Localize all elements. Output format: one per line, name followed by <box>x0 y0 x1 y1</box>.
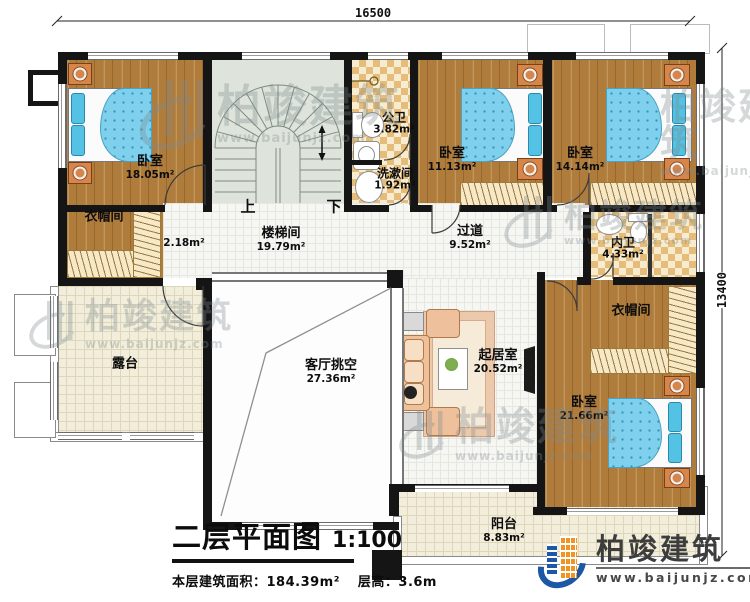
dimension-right: 13400 <box>712 272 732 308</box>
stair-arrow-icon <box>319 125 326 161</box>
dimension-top: 16500 <box>352 6 394 20</box>
room-label-terrace: 露台 <box>112 358 138 373</box>
room-label-stairwell: 楼梯间 19.79m² <box>257 227 306 253</box>
plan-title: 二层平面图 <box>172 514 322 556</box>
title-block: 二层平面图 1:100 本层建筑面积：184.39m² 层高：3.6m <box>172 514 437 590</box>
title-underline <box>172 559 354 563</box>
plan-scale: 1:100 <box>332 528 402 553</box>
door-arcs <box>163 134 613 326</box>
room-label-bedroom1: 卧室 18.05m² <box>126 155 175 181</box>
room-label-bedroom4: 卧室 21.66m² <box>560 396 609 422</box>
room-label-bedroom2: 卧室 11.13m² <box>428 147 477 173</box>
logo-building-blue <box>547 544 557 576</box>
stair-up-label: 上 <box>240 199 255 216</box>
room-label-washroom: 洗漱间 1.92m² <box>374 167 415 192</box>
void-diagonal <box>221 288 391 516</box>
brand-logo: 柏竣建筑 www.baijunjz.com <box>538 534 750 588</box>
room-label-publicbath: 公卫 3.82m² <box>373 111 414 136</box>
room-label-sittingroom: 起居室 20.52m² <box>474 349 523 375</box>
floor-height-label: 层高：3.6m <box>358 571 437 590</box>
room-area-cloakroom1: 2.18m² <box>163 238 204 250</box>
room-label-bedroom3: 卧室 14.14m² <box>556 147 605 173</box>
brand-url: www.baijunjz.com <box>596 567 750 585</box>
stair-down-label: 下 <box>326 199 341 216</box>
floor-plan-canvas: 16500 13400 卧室 18.05m² 衣帽间 2.18m² 上 下 楼梯… <box>0 0 750 602</box>
room-label-balcony: 阳台 8.83m² <box>483 518 524 544</box>
plan-linework <box>0 0 750 602</box>
brand-name: 柏竣建筑 <box>596 534 750 566</box>
room-label-livingvoid: 客厅挑空 27.36m² <box>305 359 357 385</box>
lamp-icon <box>352 77 378 85</box>
room-label-cloakroom2: 衣帽间 <box>611 305 650 320</box>
room-label-corridor: 过道 9.52m² <box>449 225 490 251</box>
room-label-innerbath: 内卫 4.33m² <box>602 236 643 261</box>
floor-area-label: 本层建筑面积：184.39m² <box>172 571 340 590</box>
logo-building-orange <box>560 536 577 578</box>
room-label-cloakroom1: 衣帽间 <box>84 211 123 226</box>
brand-logo-icon <box>538 534 586 588</box>
